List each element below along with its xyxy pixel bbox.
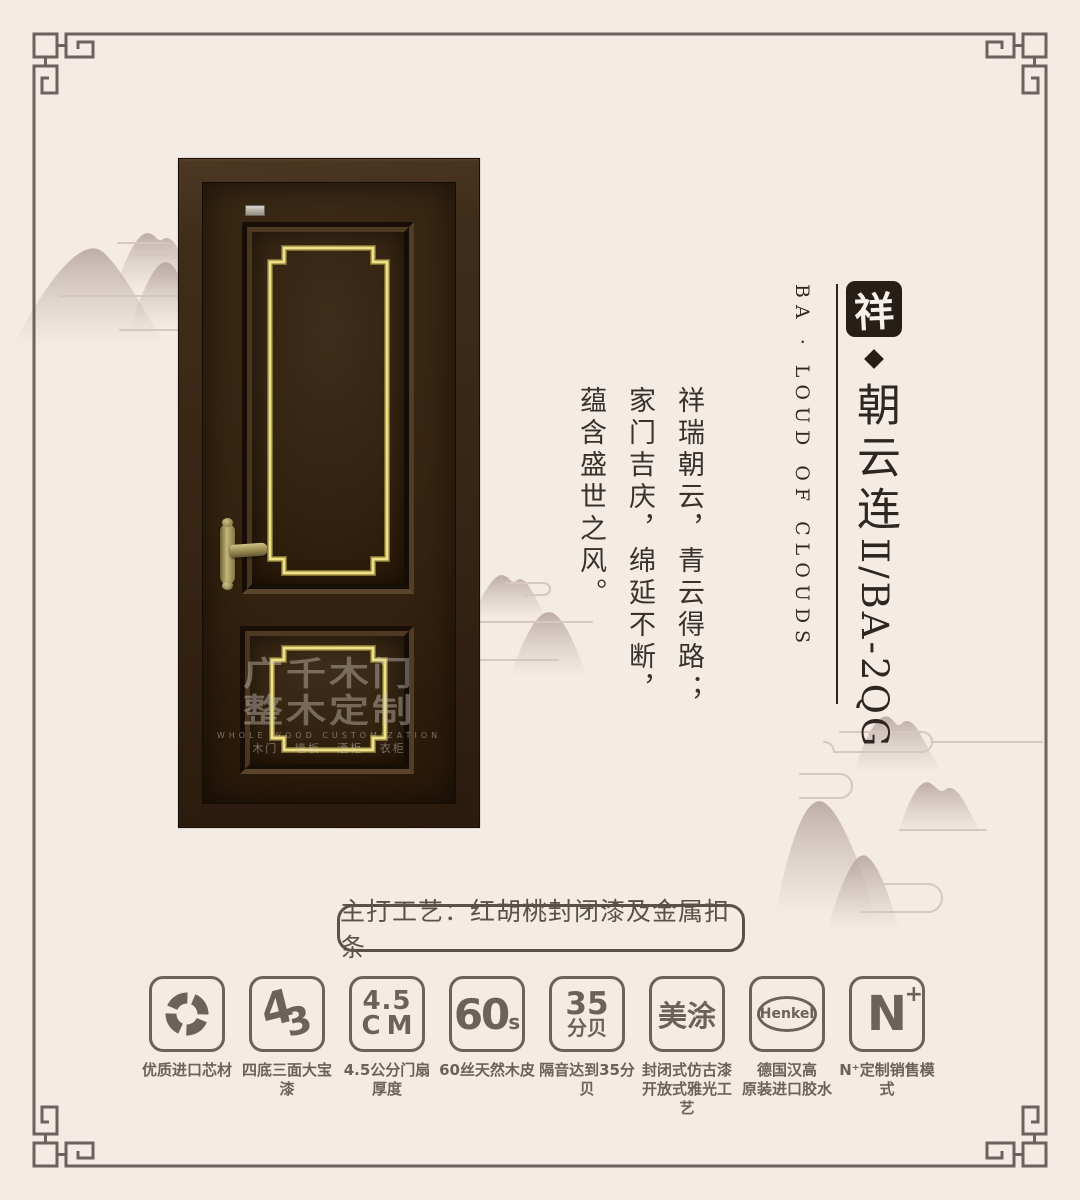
feature-soundproof: 35 分贝 隔音达到35分贝 bbox=[537, 976, 637, 1117]
feature-label: 四底三面大宝漆 bbox=[237, 1061, 337, 1099]
watermark-line3: WHOLE WOOD CUSTOMIZATION bbox=[178, 732, 480, 740]
feature-label: 优质进口芯材 bbox=[137, 1061, 237, 1080]
diamond-icon bbox=[864, 349, 884, 369]
craft-banner-text: 主打工艺：红胡桃封闭漆及金属扣条 bbox=[340, 892, 742, 964]
feature-label: N⁺定制销售模式 bbox=[837, 1061, 937, 1099]
watermark-line4: 木门 · 墙板 · 酒柜 · 衣柜 bbox=[178, 743, 480, 754]
feature-label: 封闭式仿古漆 开放式雅光工艺 bbox=[637, 1061, 737, 1117]
thickness-45cm-icon: 4.5 CM bbox=[349, 976, 425, 1052]
brand-seal: 祥 bbox=[846, 281, 902, 337]
feature-label: 4.5公分门扇厚度 bbox=[337, 1061, 437, 1099]
n-plus-icon: N+ bbox=[849, 976, 925, 1052]
henkel-logo-icon: Henkel bbox=[749, 976, 825, 1052]
vertical-divider bbox=[836, 284, 838, 704]
feature-paint-43: 4 3 四底三面大宝漆 bbox=[237, 976, 337, 1117]
series-english-title: BA · LOUD OF CLOUDS bbox=[791, 284, 813, 650]
veneer-60s-icon: 60s bbox=[449, 976, 525, 1052]
feature-thickness: 4.5 CM 4.5公分门扇厚度 bbox=[337, 976, 437, 1117]
product-name: 朝云连Ⅱ/BA-2QG bbox=[845, 382, 903, 749]
feature-icons-row: 优质进口芯材 4 3 四底三面大宝漆 4.5 CM 4.5公分门扇厚度 60s … bbox=[137, 976, 941, 1117]
product-model-code: Ⅱ/BA-2QG bbox=[853, 538, 896, 749]
feature-core-material: 优质进口芯材 bbox=[137, 976, 237, 1117]
number-43-icon: 4 3 bbox=[249, 976, 325, 1052]
feature-custom-sales: N+ N⁺定制销售模式 bbox=[837, 976, 937, 1117]
product-name-cn: 朝云连 bbox=[849, 382, 900, 538]
feature-coating: 美涂 封闭式仿古漆 开放式雅光工艺 bbox=[637, 976, 737, 1117]
aperture-icon bbox=[149, 976, 225, 1052]
brand-seal-character: 祥 bbox=[853, 279, 896, 339]
poem-text: 祥瑞朝云，青云得路；家门吉庆，绵延不断，蕴含盛世之风。 bbox=[566, 386, 713, 708]
feature-veneer: 60s 60丝天然木皮 bbox=[437, 976, 537, 1117]
feature-glue: Henkel 德国汉高 原装进口胶水 bbox=[737, 976, 837, 1117]
meitu-coating-icon: 美涂 bbox=[649, 976, 725, 1052]
feature-label: 隔音达到35分贝 bbox=[537, 1061, 637, 1099]
feature-label: 德国汉高 原装进口胶水 bbox=[737, 1061, 837, 1099]
decibel-35-icon: 35 分贝 bbox=[549, 976, 625, 1052]
craft-banner: 主打工艺：红胡桃封闭漆及金属扣条 bbox=[337, 904, 745, 952]
feature-label: 60丝天然木皮 bbox=[437, 1061, 537, 1080]
brand-watermark: 广千木门 整木定制 WHOLE WOOD CUSTOMIZATION 木门 · … bbox=[178, 656, 480, 754]
door-product-image: 广千木门 整木定制 WHOLE WOOD CUSTOMIZATION 木门 · … bbox=[178, 158, 480, 828]
watermark-line2: 整木定制 bbox=[178, 696, 480, 726]
watermark-line1: 广千木门 bbox=[178, 659, 480, 689]
